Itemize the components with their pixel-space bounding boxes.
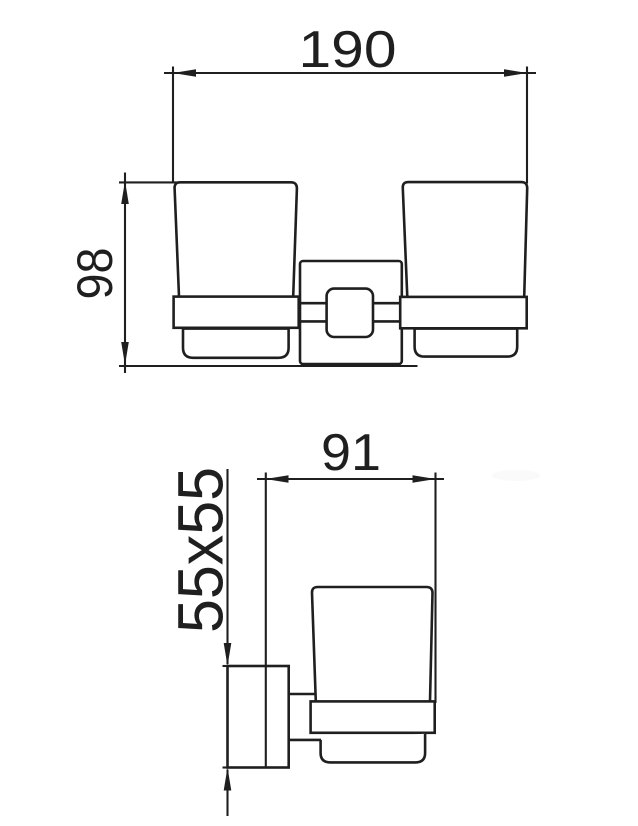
svg-text:190: 190 (299, 21, 397, 79)
svg-text:98: 98 (67, 248, 123, 300)
svg-text:55x55: 55x55 (165, 467, 237, 633)
svg-text:91: 91 (321, 424, 381, 482)
